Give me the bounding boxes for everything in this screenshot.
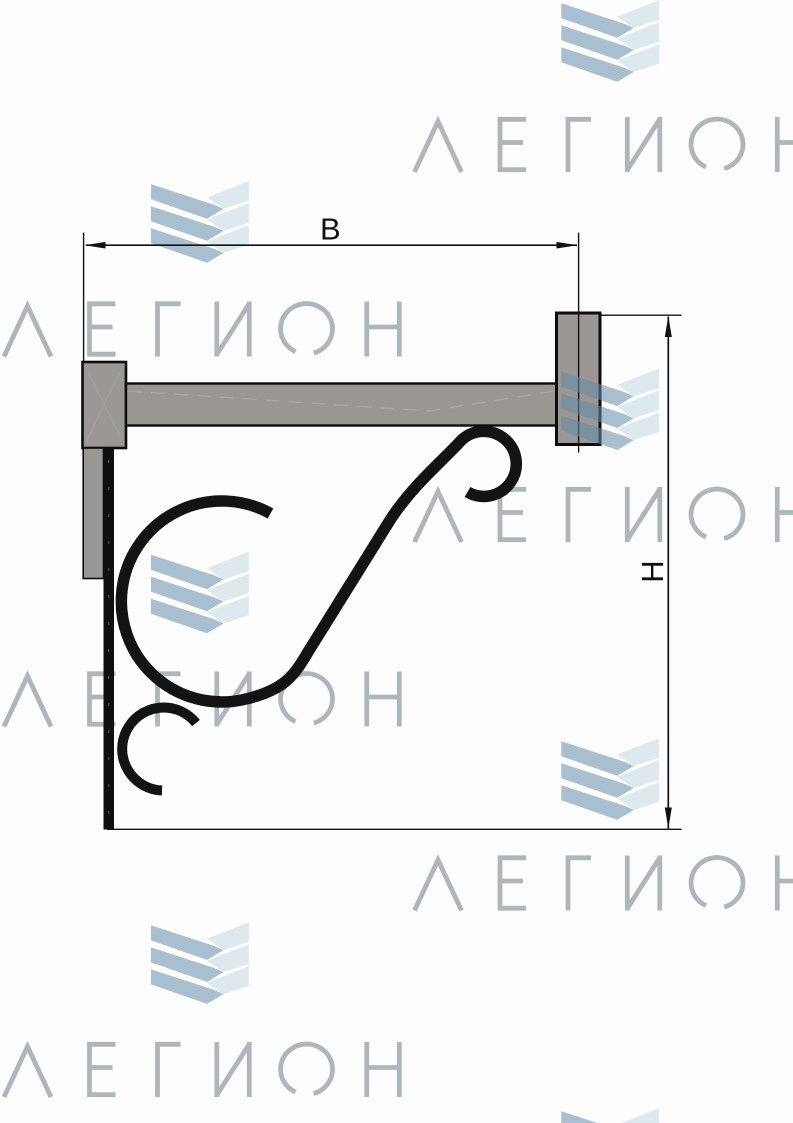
svg-text:Н: Н	[635, 560, 670, 582]
svg-text:В: В	[320, 212, 341, 247]
